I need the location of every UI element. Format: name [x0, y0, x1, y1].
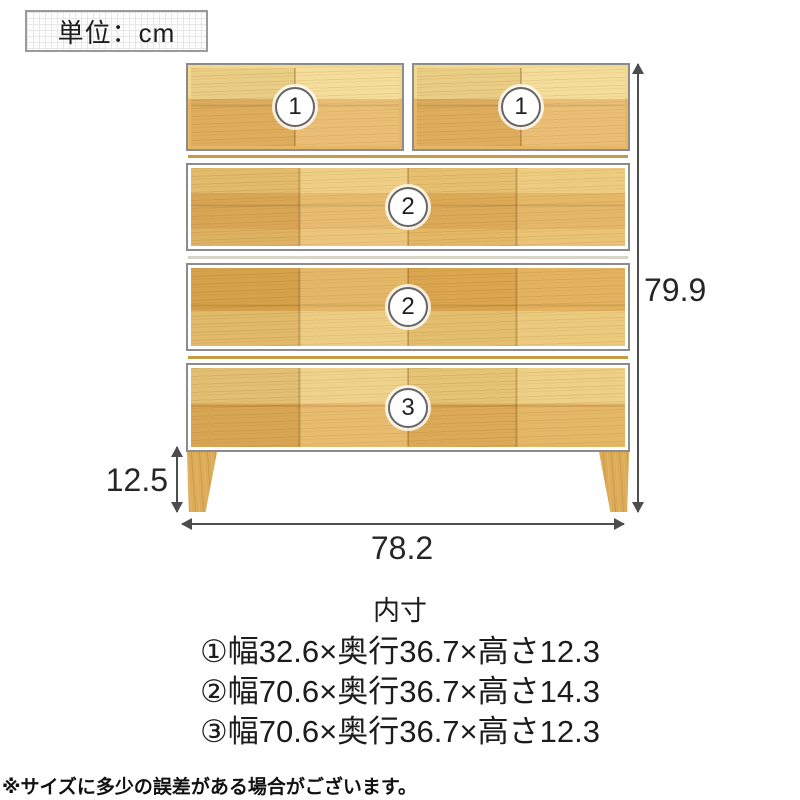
- leg-right: [599, 452, 629, 512]
- wood-strip: [188, 256, 628, 259]
- drawer-number-badge: 1: [275, 87, 315, 127]
- wood-strip: [188, 356, 628, 359]
- unit-box: 単位：cm: [25, 10, 208, 52]
- inner-dimensions-title: 内寸: [0, 589, 800, 628]
- leg-height-dimension-arrow: [176, 447, 178, 512]
- drawer-number: 1: [288, 93, 301, 121]
- drawer-top-right: 1: [412, 63, 630, 151]
- inner-dimension-item-1: ①幅32.6×奥行36.7×高さ12.3: [0, 632, 800, 672]
- drawer-bottom: 3: [186, 363, 630, 452]
- drawer-number-badge: 2: [388, 187, 428, 227]
- drawer-number: 1: [514, 93, 527, 121]
- drawer-number: 2: [401, 293, 414, 321]
- drawer-number-badge: 1: [501, 87, 541, 127]
- drawer-number-badge: 2: [388, 287, 428, 327]
- inner-dimension-item-3: ③幅70.6×奥行36.7×高さ12.3: [0, 712, 800, 752]
- wood-strip: [188, 155, 628, 158]
- drawer-top-left: 1: [186, 63, 404, 151]
- inner-dimensions-block: 内寸 ①幅32.6×奥行36.7×高さ12.3 ②幅70.6×奥行36.7×高さ…: [0, 589, 800, 752]
- size-tolerance-note: ※サイズに多少の誤差がある場合がございます。: [2, 772, 417, 799]
- drawer-number: 3: [401, 394, 414, 422]
- unit-label: 単位：cm: [58, 13, 176, 50]
- width-dimension-label: 78.2: [340, 530, 464, 567]
- product-dimension-diagram: 単位：cm 1 1 2 2 3: [0, 0, 800, 800]
- drawer-middle-upper: 2: [186, 163, 630, 251]
- leg-left: [187, 452, 217, 512]
- drawer-number-badge: 3: [388, 388, 428, 428]
- chest-illustration: 1 1 2 2 3: [186, 63, 630, 512]
- inner-dimension-item-2: ②幅70.6×奥行36.7×高さ14.3: [0, 672, 800, 712]
- leg-height-dimension-label: 12.5: [82, 462, 168, 499]
- drawer-middle-lower: 2: [186, 263, 630, 351]
- width-dimension-arrow: [182, 523, 624, 525]
- height-dimension-label: 79.9: [644, 272, 706, 309]
- height-dimension-arrow: [637, 64, 639, 512]
- drawer-number: 2: [401, 193, 414, 221]
